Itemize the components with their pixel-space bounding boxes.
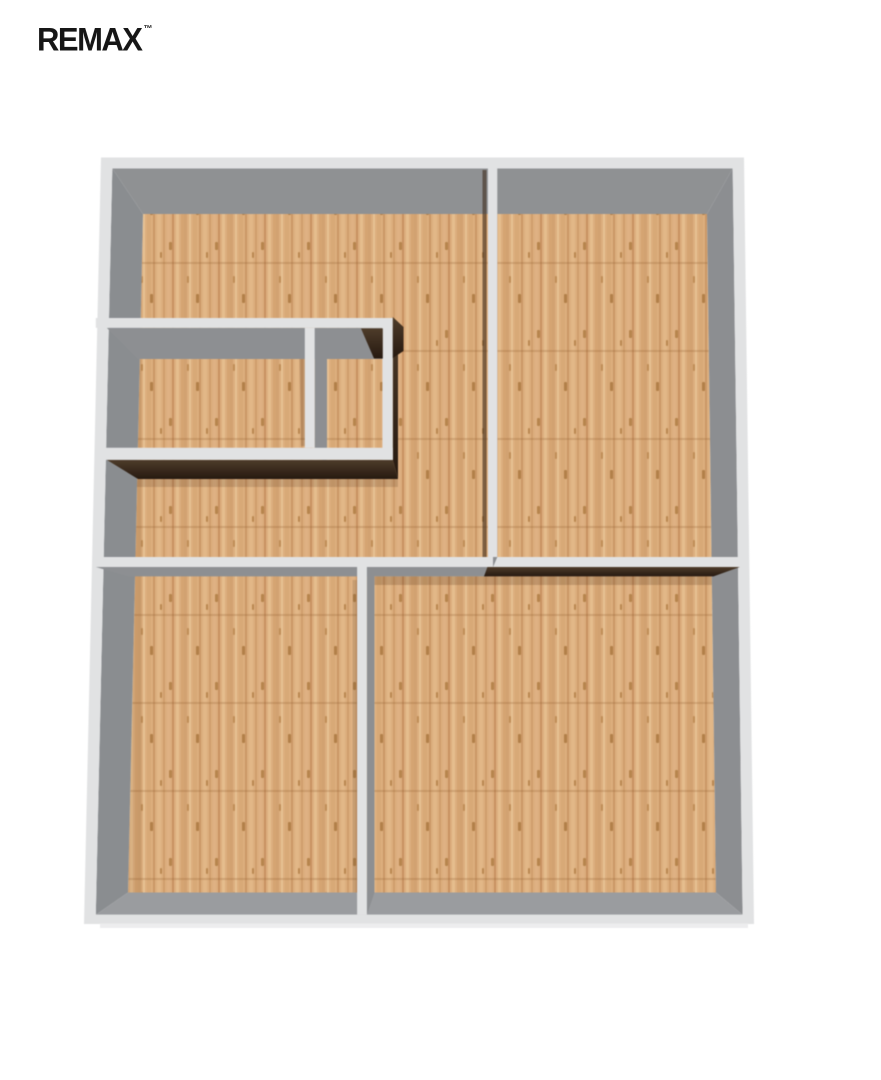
floor-shadow-bottom-divider: [353, 580, 358, 893]
wall-mid-wall-east-cap: [487, 557, 740, 567]
wall-mid-wall-west: [96, 557, 492, 576]
wall-closet-south-face-south: [107, 460, 398, 479]
wall-top-divider: [488, 168, 497, 568]
floorplan-image: REMAX™: [0, 0, 881, 1080]
floor-shadow-below-closet: [130, 479, 398, 487]
wall-closet-north-face-south: [107, 328, 398, 359]
outer-wall-face-top: [112, 168, 732, 214]
bottom-cap-outer-edge: [100, 924, 748, 929]
floor: [128, 214, 716, 893]
outer-wall-face-bottom: [96, 893, 743, 915]
wall-closet-north: [96, 318, 398, 359]
face-overlays: [483, 170, 487, 557]
wall-bottom-divider-cap: [357, 567, 367, 915]
wall-mid-wall-west-cap: [96, 557, 492, 567]
wall-mid-wall-east-face-south: [484, 567, 740, 576]
wall-closet-south: [96, 448, 398, 479]
wall-mid-wall-west-face-south: [96, 567, 492, 576]
wood-floor: [128, 214, 716, 893]
shadow-top-divider-west: [483, 170, 487, 557]
floor-shadow-below-mid-east: [375, 577, 714, 586]
wall-closet-north-cap: [96, 318, 393, 328]
wall-bottom-divider: [357, 567, 374, 915]
wall-top-divider-cap: [488, 168, 497, 557]
wall-closet-divider-cap: [305, 328, 315, 448]
wall-bottom-divider-face-east: [367, 567, 375, 915]
wall-mid-wall-east: [484, 557, 740, 576]
floorplan-3d-render: [0, 0, 881, 1080]
wall-closet-east-cap: [382, 318, 392, 460]
wall-closet-south-cap: [96, 448, 393, 460]
